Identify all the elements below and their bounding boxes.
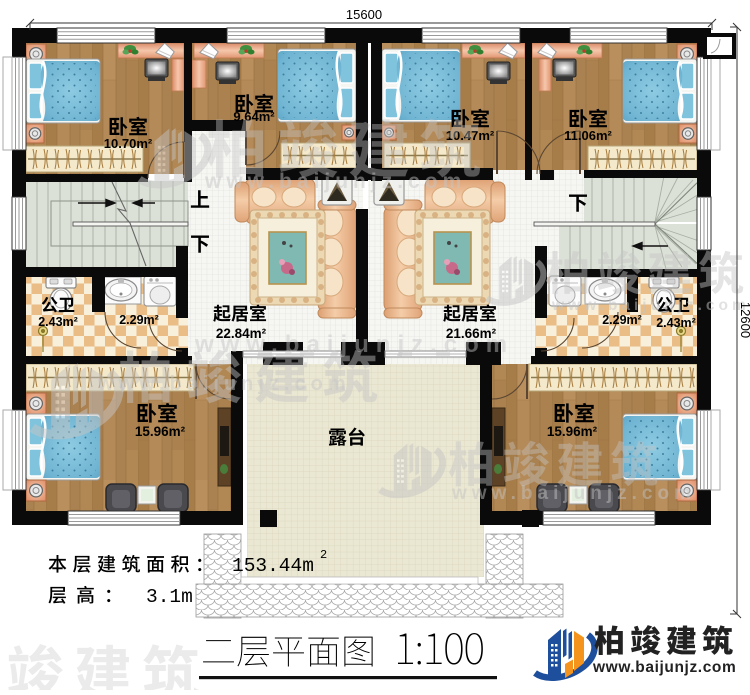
svg-text:www.baijunjz.com: www.baijunjz.com xyxy=(451,483,696,504)
svg-text:www.baijunjz.com: www.baijunjz.com xyxy=(551,297,750,314)
svg-text:www.baijunjz.com: www.baijunjz.com xyxy=(204,170,466,193)
svg-text:15600: 15600 xyxy=(346,7,382,22)
svg-text:2.29m²: 2.29m² xyxy=(602,313,642,327)
svg-text:153.44m: 153.44m xyxy=(232,555,314,577)
svg-text:www.baijunjz.com: www.baijunjz.com xyxy=(97,373,351,395)
svg-text:2.43m²: 2.43m² xyxy=(656,316,696,330)
svg-text:11.06m²: 11.06m² xyxy=(564,128,612,143)
svg-text:9.64m²: 9.64m² xyxy=(233,109,275,124)
svg-text:15.96m²: 15.96m² xyxy=(547,424,598,439)
svg-text:2: 2 xyxy=(320,548,327,562)
svg-text:10.70m²: 10.70m² xyxy=(104,136,153,151)
svg-text:2.29m²: 2.29m² xyxy=(119,313,159,327)
svg-text:www.baijunjz.com: www.baijunjz.com xyxy=(592,659,736,676)
svg-text:15.96m²: 15.96m² xyxy=(135,424,186,439)
svg-text:12600: 12600 xyxy=(738,302,750,338)
svg-text:3.1m: 3.1m xyxy=(146,586,193,608)
svg-text:2.43m²: 2.43m² xyxy=(38,315,78,329)
